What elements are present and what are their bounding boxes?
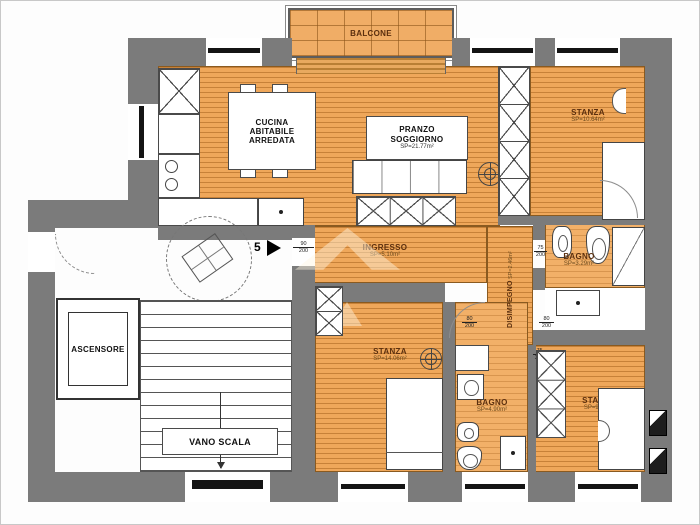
balcony-threshold bbox=[296, 58, 446, 74]
door-dim-height: 200 bbox=[534, 251, 547, 258]
wall bbox=[128, 38, 206, 66]
window-glass bbox=[578, 484, 638, 489]
wall bbox=[452, 38, 470, 66]
room-name: PRANZO SOGGIORNO bbox=[377, 125, 457, 143]
room-label-balcone: BALCONE bbox=[350, 29, 392, 38]
room-area: SP=3.29m² bbox=[545, 261, 613, 268]
bathroom-door-leaf bbox=[455, 345, 489, 371]
shower-icon bbox=[612, 227, 645, 286]
window-right-1 bbox=[649, 410, 667, 436]
ceiling-point-icon bbox=[420, 348, 442, 370]
stair-direction-arrow-icon bbox=[217, 462, 225, 469]
window-glass bbox=[341, 484, 405, 489]
window-glass bbox=[472, 48, 533, 53]
wall bbox=[533, 222, 545, 240]
room-label-disimpegno: DISIMPEGNO SP=2.46m² bbox=[492, 238, 530, 342]
door-swing-arc bbox=[55, 234, 95, 274]
unit-number: 5 bbox=[254, 240, 261, 254]
room-name: DISIMPEGNO bbox=[507, 280, 515, 328]
kitchen-counter bbox=[158, 114, 200, 154]
window-right-2 bbox=[649, 448, 667, 474]
door-dim-height: 200 bbox=[293, 247, 314, 254]
sofa-icon bbox=[352, 160, 467, 194]
kitchen-sink-icon bbox=[258, 198, 304, 226]
wall bbox=[533, 330, 645, 345]
room-label-pranzo: PRANZO SOGGIORNO SP=21.77m² bbox=[366, 116, 468, 160]
window-glass bbox=[139, 106, 144, 158]
room-label-ascensore: ASCENSORE bbox=[71, 345, 124, 354]
unit-entry-arrow-icon bbox=[267, 240, 281, 256]
wardrobe-icon bbox=[498, 66, 530, 216]
room-area: SP=2.46m² bbox=[508, 252, 514, 280]
window-glass bbox=[208, 48, 260, 53]
window-glass bbox=[465, 484, 525, 489]
room-label-bagno-top: BAGNO SP=3.29m² bbox=[545, 252, 613, 268]
wall bbox=[528, 345, 536, 472]
door-dim-entry: 90 200 bbox=[293, 241, 314, 255]
door-dim-height: 200 bbox=[539, 322, 554, 329]
door-dim-height: 200 bbox=[462, 322, 477, 329]
room-area: SP=10.64m² bbox=[548, 117, 628, 124]
stair-landing-door bbox=[28, 232, 55, 272]
room-label-cucina: CUCINA ABITABILE ARREDATA bbox=[237, 118, 307, 145]
survey-compass-icon bbox=[166, 216, 252, 302]
kitchen-cabinet-icon bbox=[158, 68, 200, 114]
floor-plan: BALCONE 90 200 5 bbox=[0, 0, 700, 525]
compass-rect bbox=[182, 233, 234, 283]
stove-burner-icon bbox=[165, 178, 178, 191]
wall bbox=[262, 38, 292, 66]
room-name: BAGNO bbox=[545, 252, 613, 261]
wall bbox=[535, 38, 555, 66]
room-name: BAGNO bbox=[455, 398, 529, 407]
bathroom-sink-icon bbox=[500, 436, 526, 470]
entrance-door-leaf bbox=[192, 480, 263, 489]
elevator-cab: ASCENSORE bbox=[68, 312, 128, 386]
kitchen-stove-icon bbox=[158, 154, 200, 198]
wall bbox=[292, 266, 315, 472]
window-glass bbox=[557, 48, 618, 53]
dining-table: CUCINA ABITABILE ARREDATA bbox=[228, 92, 316, 170]
balcony: BALCONE bbox=[288, 8, 454, 58]
wall bbox=[292, 225, 315, 238]
wall bbox=[533, 268, 545, 290]
washing-machine-icon bbox=[457, 374, 484, 400]
wardrobe-icon bbox=[536, 350, 566, 438]
bed-icon bbox=[386, 378, 443, 470]
bidet-icon bbox=[457, 422, 479, 442]
door-dim-stanza-right: 80 200 bbox=[539, 316, 554, 330]
door-dim-bagno-top: 75 200 bbox=[534, 245, 547, 259]
door-dim-stanza-center: 80 200 bbox=[462, 316, 477, 330]
bed-pillow-line bbox=[386, 452, 443, 453]
stove-burner-icon bbox=[165, 160, 178, 173]
wardrobe-icon bbox=[315, 286, 343, 336]
wall bbox=[128, 66, 158, 104]
bathroom-sink-icon bbox=[556, 290, 600, 316]
wall bbox=[28, 200, 158, 228]
room-name: VANO SCALA bbox=[189, 437, 251, 447]
sideboard-icon bbox=[356, 196, 456, 226]
room-label-bagno-bottom: BAGNO SP=4.90m² bbox=[455, 398, 529, 414]
room-area: SP=4.90m² bbox=[455, 407, 529, 414]
room-label-vano-scala: VANO SCALA bbox=[162, 428, 278, 455]
room-area: SP=21.77m² bbox=[400, 144, 434, 151]
